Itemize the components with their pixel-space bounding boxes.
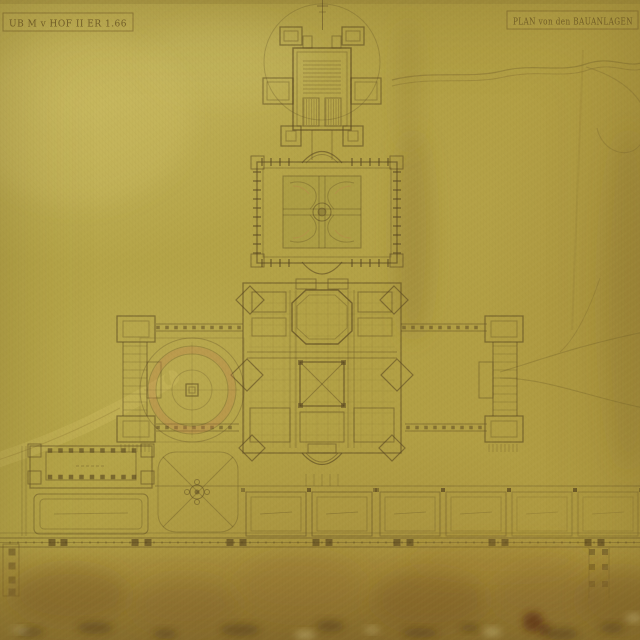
wing-stairs — [121, 444, 517, 452]
scanned-plan-sheet: UB M v HOF II ER 1.66 PLAN von den BAUAN… — [0, 0, 640, 640]
rosette-parterre — [158, 452, 238, 532]
pergola-column-piers — [48, 448, 137, 479]
left-pergola-gallery — [22, 444, 154, 536]
courtyard-garden-block — [251, 152, 403, 275]
connector-column-piers — [156, 326, 482, 430]
bottom-water-stains — [0, 540, 640, 640]
terrace-panel-row — [241, 488, 640, 536]
left-cartouche-text: UB M v HOF II ER 1.66 — [9, 20, 127, 30]
left-cartouche: UB M v HOF II ER 1.66 — [3, 13, 133, 31]
main-palace-block — [231, 279, 413, 486]
right-cartouche-text: PLAN von den BAUANLAGEN — [513, 18, 633, 28]
terrace-parterres — [155, 486, 640, 536]
plan-drawing: UB M v HOF II ER 1.66 PLAN von den BAUAN… — [0, 0, 640, 640]
right-cartouche: PLAN von den BAUANLAGEN — [507, 11, 638, 29]
garden-stairs — [306, 474, 338, 486]
